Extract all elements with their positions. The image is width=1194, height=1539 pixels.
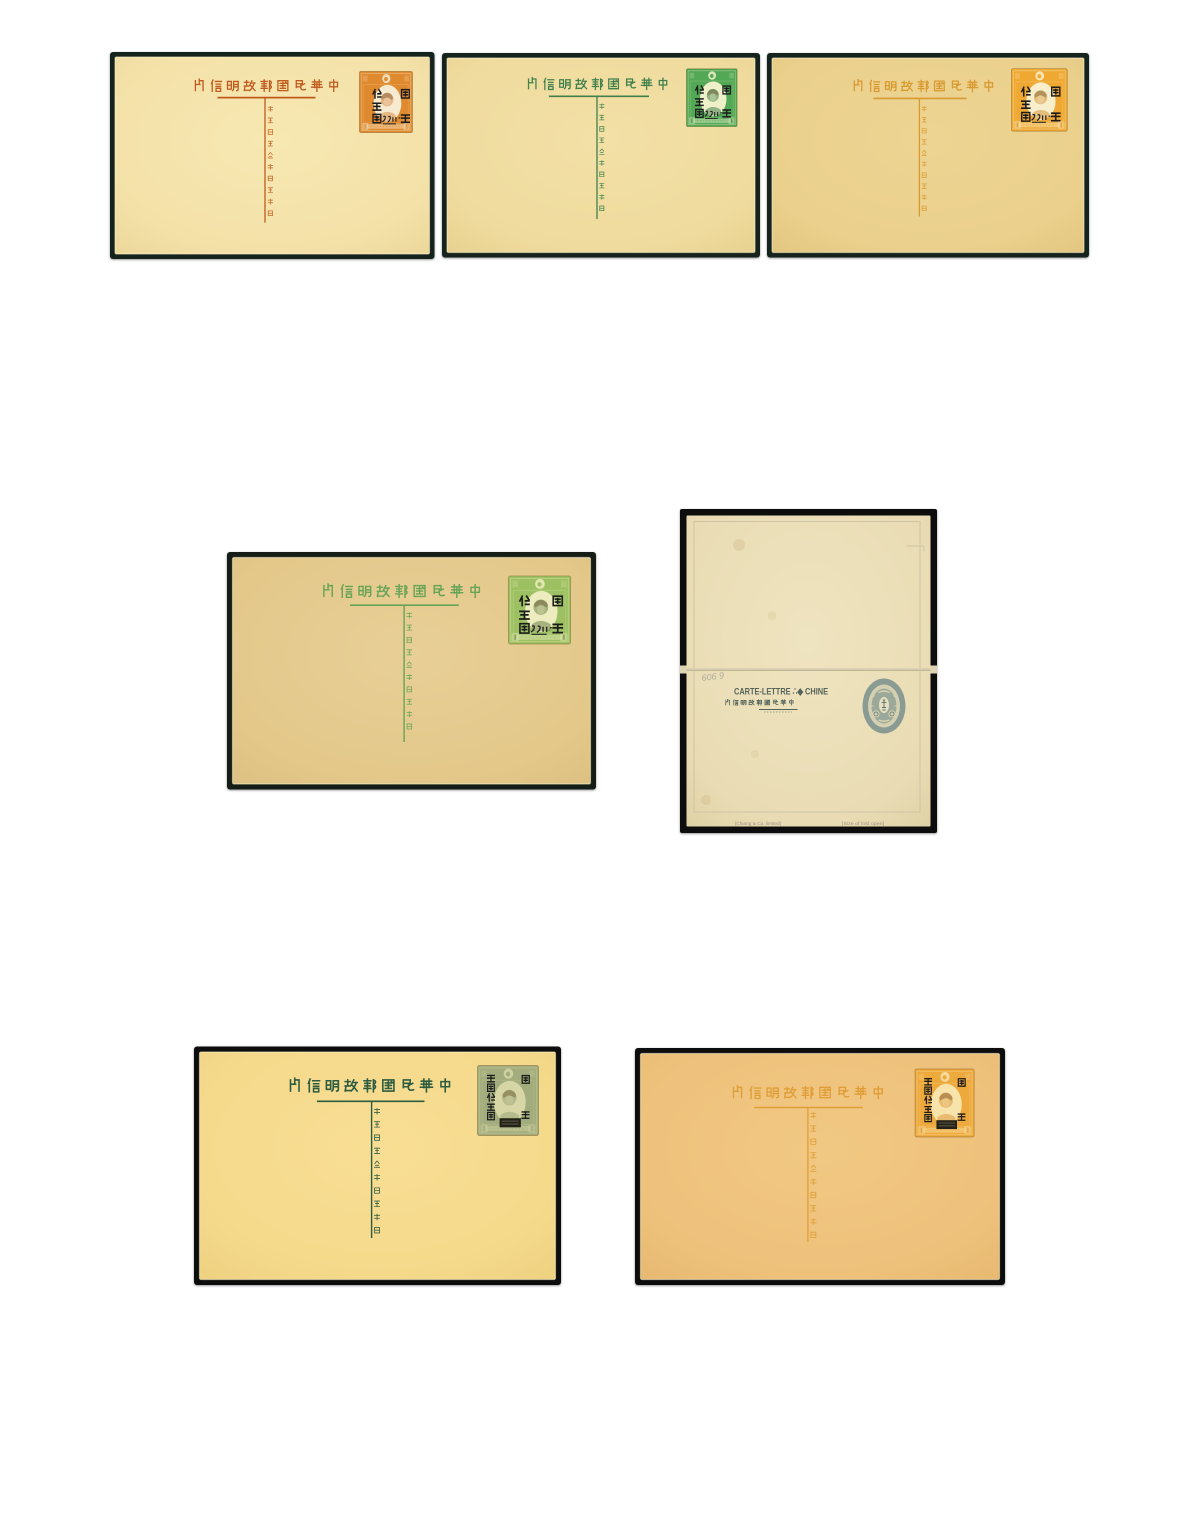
svg-text:[Chiang & Co. limited]: [Chiang & Co. limited] bbox=[735, 821, 781, 826]
svg-text:[Size of fold open]: [Size of fold open] bbox=[842, 821, 884, 826]
svg-text:CARTE-LETTRE ∴◆ CHINE: CARTE-LETTRE ∴◆ CHINE bbox=[734, 686, 828, 697]
